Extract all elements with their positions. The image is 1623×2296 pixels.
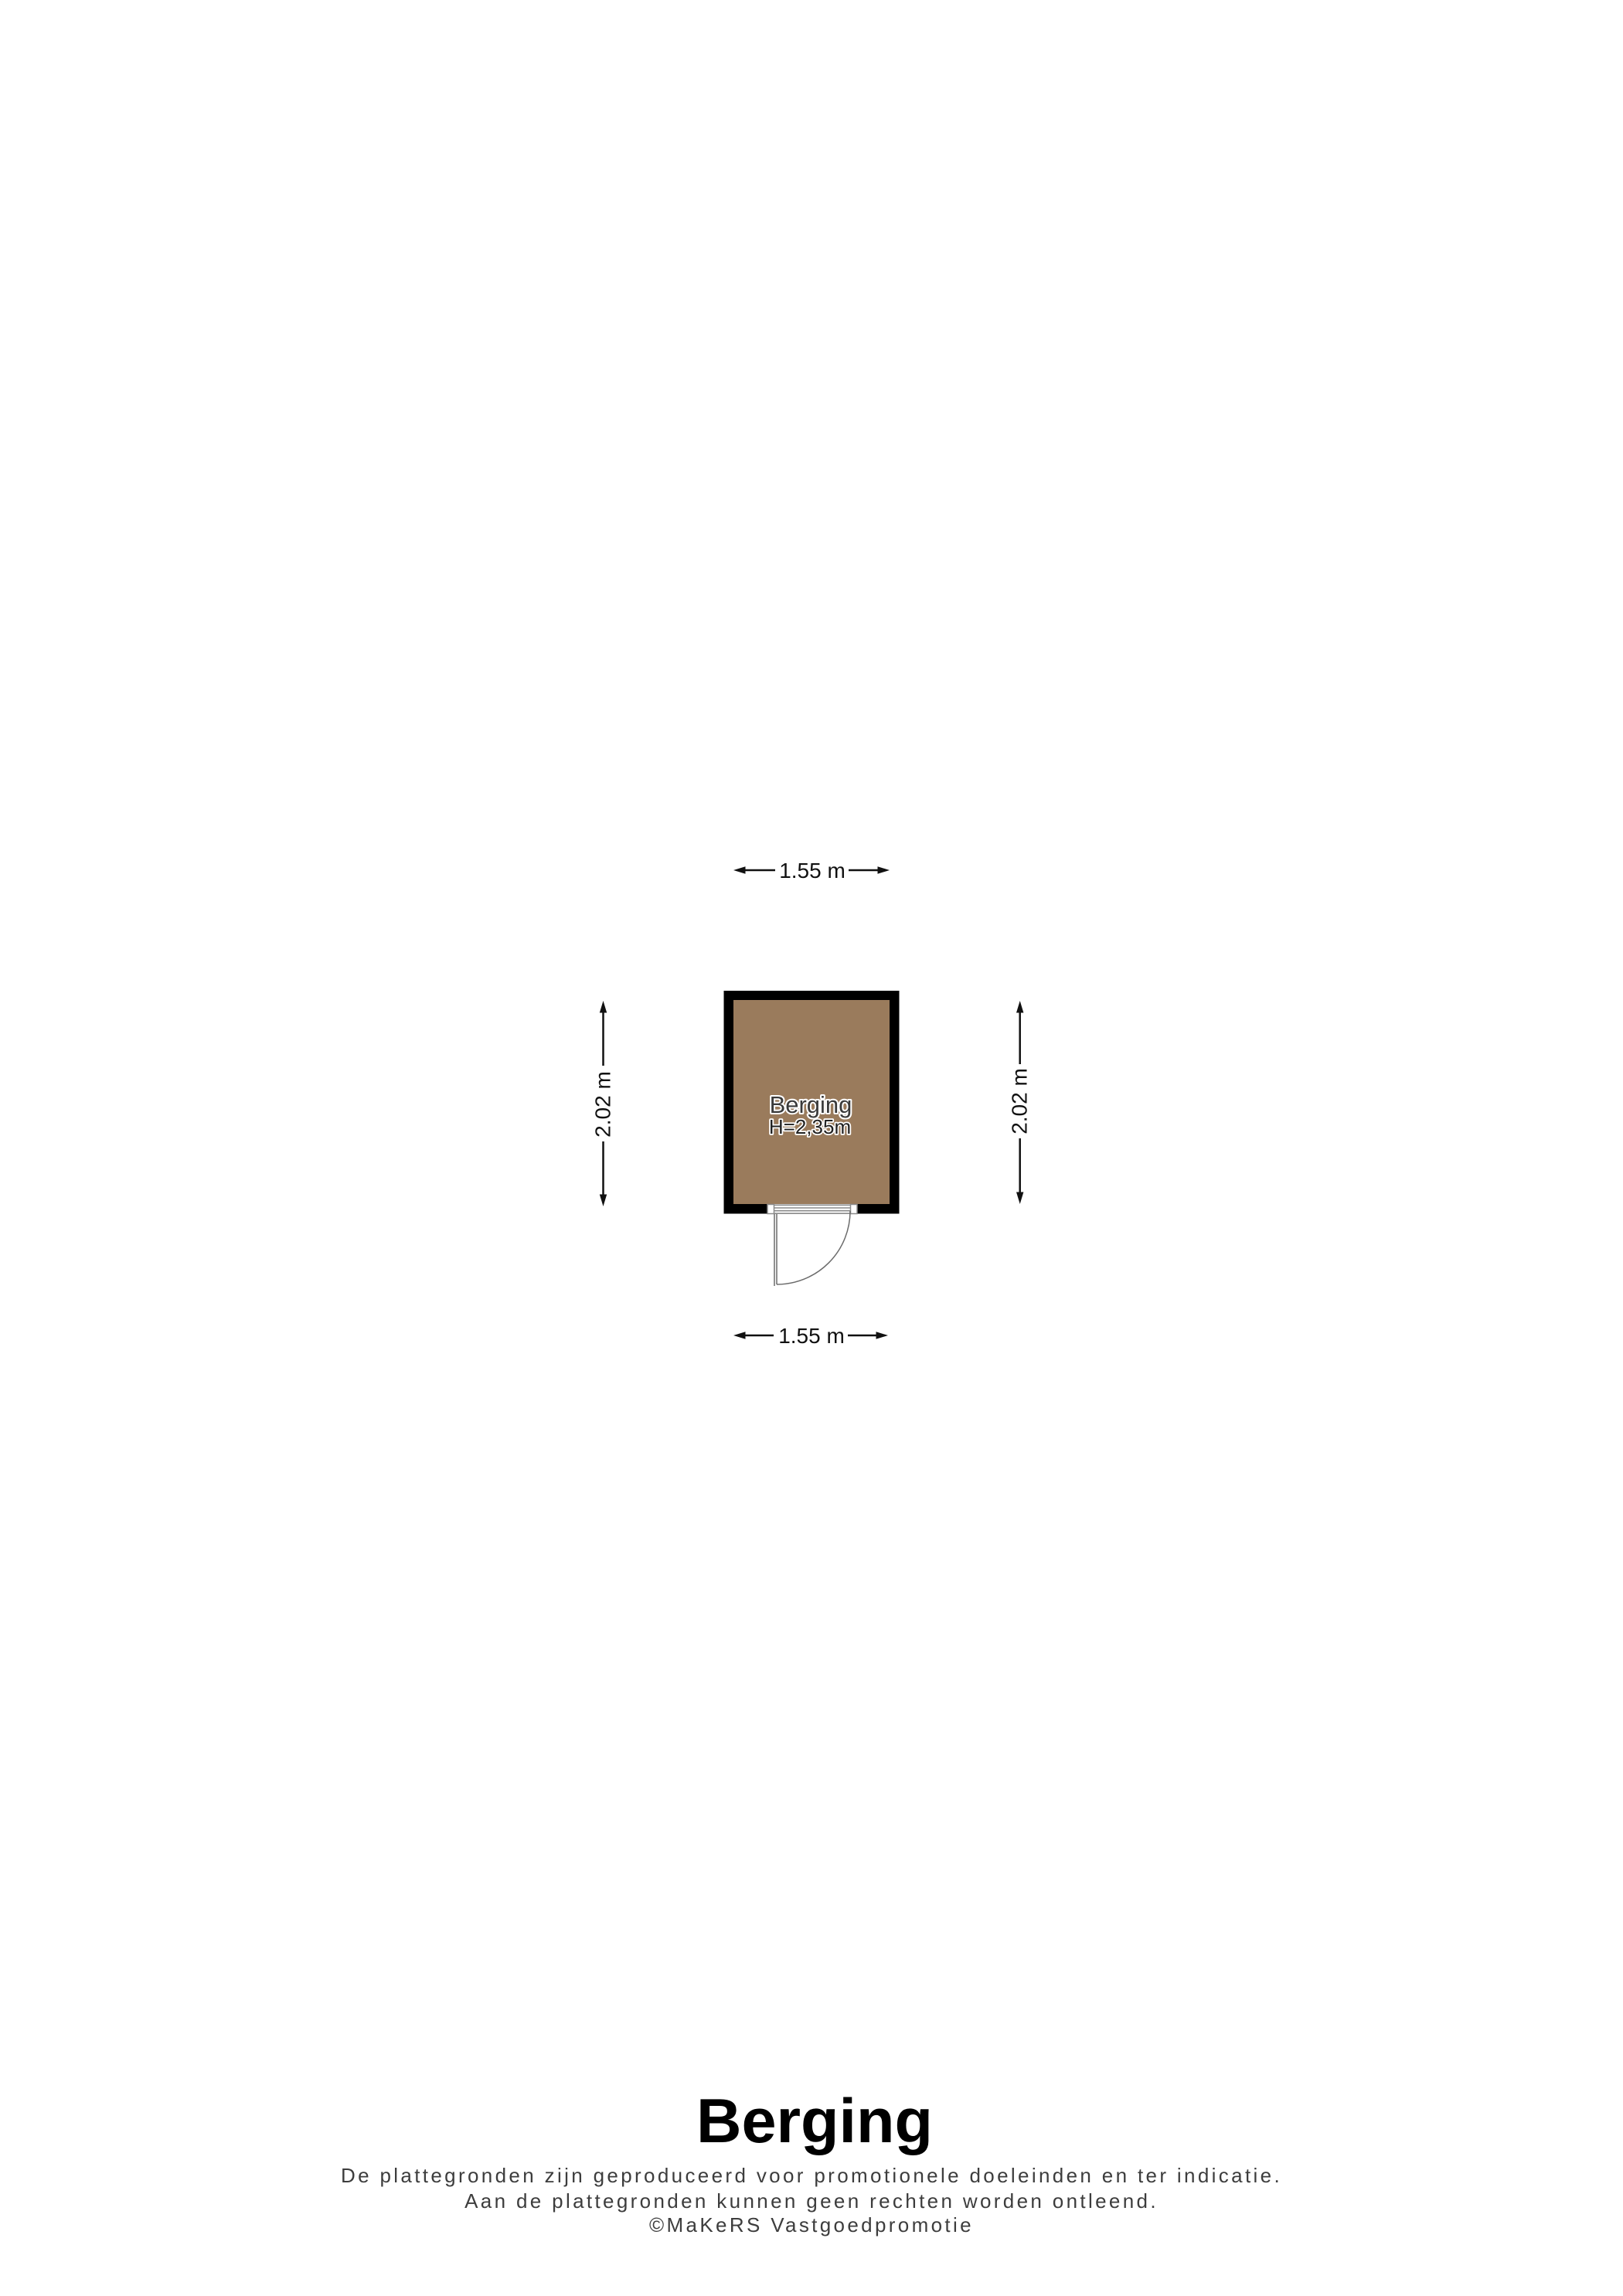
svg-text:Berging: Berging [696, 2087, 933, 2156]
svg-text:1.55 m: 1.55 m [778, 1324, 845, 1348]
svg-text:2.02 m: 2.02 m [591, 1071, 615, 1138]
svg-text:Aan de plattegronden kunnen ge: Aan de plattegronden kunnen geen rechten… [464, 2189, 1159, 2213]
svg-text:2.02 m: 2.02 m [1008, 1068, 1032, 1134]
svg-text:H=2,35m: H=2,35m [769, 1115, 851, 1138]
svg-text:1.55 m: 1.55 m [779, 859, 846, 883]
svg-text:©MaKeRS Vastgoedpromotie: ©MaKeRS Vastgoedpromotie [649, 2213, 974, 2236]
svg-text:De plattegronden zijn geproduc: De plattegronden zijn geproduceerd voor … [341, 2164, 1282, 2187]
svg-text:Berging: Berging [770, 1091, 852, 1118]
